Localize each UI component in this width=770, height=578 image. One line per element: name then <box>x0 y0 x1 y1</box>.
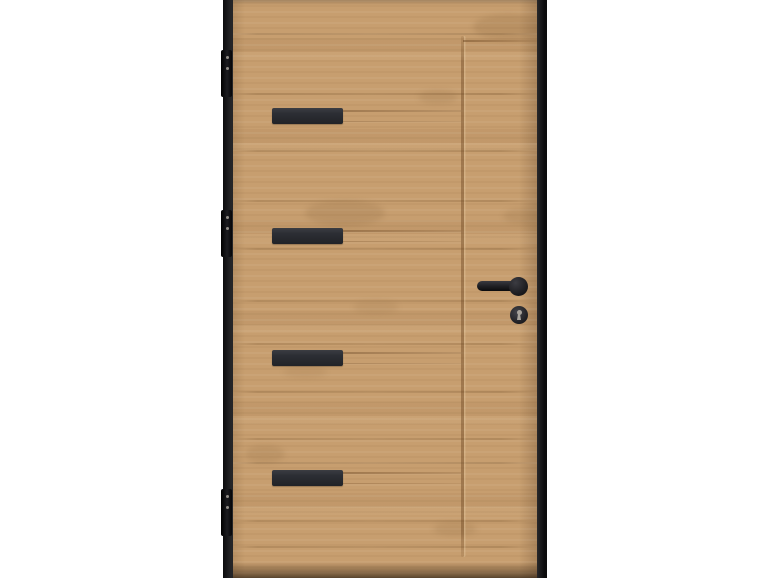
hinge-screw-dot <box>226 227 229 230</box>
hinge-icon <box>221 50 232 97</box>
floor-shadow <box>233 562 537 578</box>
wood-plank-seam <box>233 150 537 152</box>
hinge-icon <box>221 489 232 536</box>
door-frame-right <box>537 0 547 578</box>
wood-grain-mark <box>305 200 385 226</box>
wood-grain-mark <box>418 90 458 104</box>
door-frame-left <box>223 0 233 578</box>
wood-plank-seam <box>233 520 537 522</box>
hinge-screw-dot <box>226 67 229 70</box>
wood-grain-mark <box>283 366 327 378</box>
inlay-strip <box>272 108 343 124</box>
wood-plank-seam <box>233 343 537 345</box>
wood-plank-seam <box>233 546 537 548</box>
door-handle-rosette <box>509 277 528 296</box>
hinge-icon <box>221 210 232 257</box>
inlay-strip <box>272 228 343 244</box>
wood-plank-seam <box>233 438 537 440</box>
wood-grain-mark <box>245 445 285 463</box>
wood-plank-seam <box>233 200 537 202</box>
hinge-screw-dot <box>226 216 229 219</box>
hinge-screw-dot <box>226 495 229 498</box>
wood-plank-seam <box>233 93 537 95</box>
wood-plank-seam <box>233 248 537 250</box>
wood-plank-seam <box>233 462 537 464</box>
keyhole-escutcheon <box>510 306 528 324</box>
vertical-groove <box>461 36 464 557</box>
top-horizontal-groove <box>463 40 537 42</box>
inlay-strip <box>272 470 343 486</box>
wood-grain-mark <box>473 14 537 40</box>
door-product-photo <box>0 0 770 578</box>
keyhole-icon <box>517 310 522 315</box>
hinge-screw-dot <box>226 506 229 509</box>
wood-grain-mark <box>503 208 537 224</box>
wood-grain-mark <box>353 300 399 314</box>
inlay-strip <box>272 350 343 366</box>
hinge-screw-dot <box>226 56 229 59</box>
wood-grain-mark <box>433 522 477 536</box>
door-leaf <box>233 0 537 578</box>
wood-plank-seam <box>233 391 537 393</box>
